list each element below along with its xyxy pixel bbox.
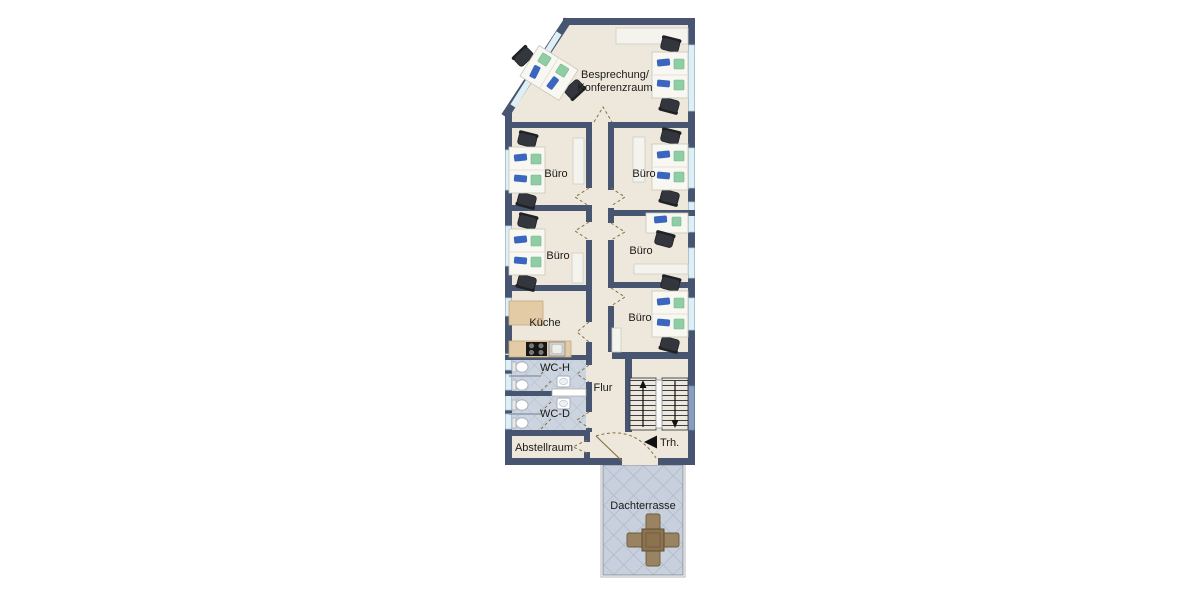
sideboard xyxy=(634,264,688,274)
window xyxy=(689,202,695,232)
toilet xyxy=(512,362,528,372)
wall xyxy=(505,430,590,436)
wall xyxy=(586,122,592,188)
window xyxy=(506,394,512,410)
floor-plan-canvas: Dachterrasse xyxy=(0,0,1200,600)
room-label-conference-line2: Konferenzraum xyxy=(577,82,652,94)
window xyxy=(689,45,695,111)
room-label-wc-men: WC-H xyxy=(540,362,570,374)
staircase xyxy=(630,378,688,430)
washbasin-bowl xyxy=(560,378,568,384)
wall xyxy=(586,342,592,365)
stair-railing xyxy=(656,380,662,428)
stove-burner xyxy=(539,350,543,354)
kitchen-sink-basin xyxy=(552,345,562,354)
stove xyxy=(526,342,547,356)
room-label-kitchen: Küche xyxy=(529,317,560,329)
room-label-office: Büro xyxy=(546,250,569,262)
room-label-stairwell: Trh. xyxy=(660,437,679,449)
terrace-chair xyxy=(646,514,660,530)
cabinet xyxy=(573,138,584,184)
window xyxy=(506,414,512,429)
wc-partition-shelf xyxy=(552,389,586,396)
room-label-roof-terrace: Dachterrasse xyxy=(610,500,675,512)
terrace-table xyxy=(642,529,664,551)
wall xyxy=(612,352,695,359)
room-label-wc-women: WC-D xyxy=(540,408,570,420)
stove-burner xyxy=(529,344,533,348)
room-label-conference-line1: Besprechung/ xyxy=(581,69,650,81)
terrace-tiled-floor xyxy=(603,465,683,575)
wall xyxy=(586,382,592,412)
wall xyxy=(505,122,592,128)
wall xyxy=(563,18,695,25)
room-label-office: Büro xyxy=(632,168,655,180)
floor-plan-drawing: Dachterrasse xyxy=(0,0,1200,600)
toilet xyxy=(512,380,528,390)
room-label-hallway: Flur xyxy=(594,382,613,394)
terrace-chair xyxy=(646,550,660,566)
window xyxy=(689,148,695,188)
wall xyxy=(608,122,614,190)
stairwell-window xyxy=(689,386,695,430)
wall xyxy=(505,458,622,465)
toilet xyxy=(512,400,528,410)
room-label-office: Büro xyxy=(629,245,652,257)
room-label-office: Büro xyxy=(628,312,651,324)
wall xyxy=(658,458,695,465)
room-label-office: Büro xyxy=(544,168,567,180)
terrace-chair xyxy=(663,533,679,547)
cabinet xyxy=(572,253,583,283)
terrace-chair xyxy=(627,533,643,547)
wall xyxy=(608,240,614,288)
cabinet xyxy=(612,328,621,352)
wall xyxy=(612,122,695,128)
room-label-storage: Abstellraum xyxy=(515,442,573,454)
stove-burner xyxy=(539,344,543,348)
washbasin-bowl xyxy=(560,400,568,406)
wall xyxy=(586,240,592,322)
roof-terrace: Dachterrasse xyxy=(601,463,685,577)
stove-burner xyxy=(529,350,533,354)
window xyxy=(689,248,695,278)
wall xyxy=(612,282,695,288)
toilet xyxy=(512,418,528,428)
window xyxy=(689,298,695,330)
